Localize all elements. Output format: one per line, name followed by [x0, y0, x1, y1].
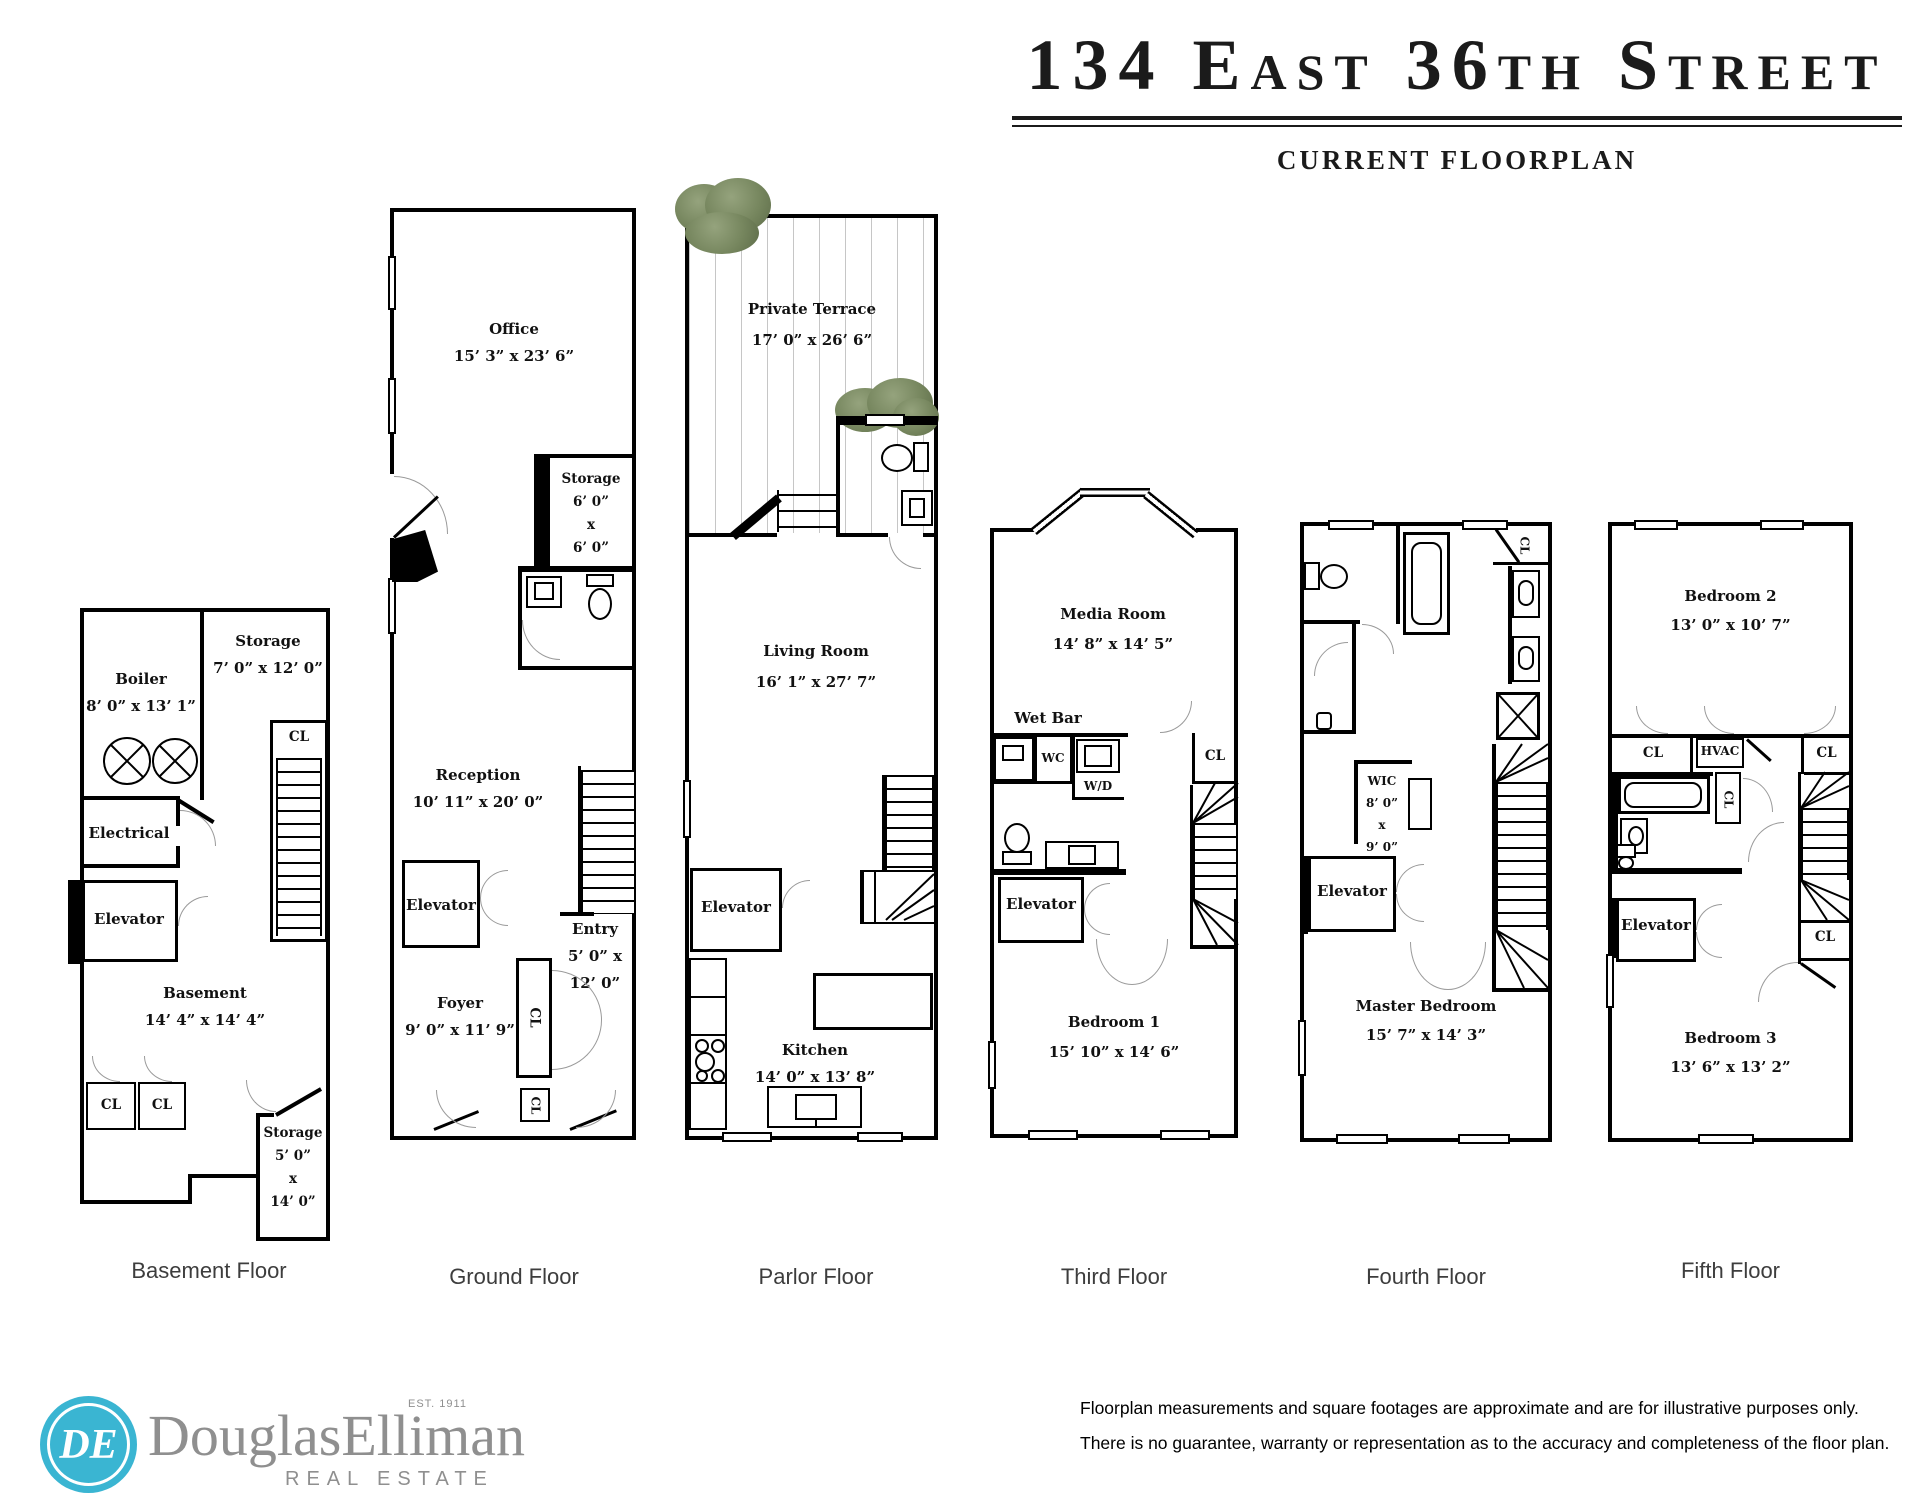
stair-winder-treads: [1496, 930, 1548, 988]
floorplan-parlor: Private Terrace 17’ 0” x 26’ 6” Living R…: [685, 192, 947, 1147]
wall: [518, 666, 636, 670]
room-label-basement: Basement 14’ 4” x 14’ 4”: [130, 980, 280, 1034]
door-arc: [1696, 904, 1722, 930]
disclaimer-line-1: Floorplan measurements and square footag…: [1080, 1398, 1920, 1419]
door-arc: [1704, 706, 1734, 734]
window: [1028, 1130, 1078, 1140]
door-arc: [1696, 932, 1722, 958]
wall: [1493, 562, 1548, 565]
disclaimer-line-2: There is no guarantee, warranty or repre…: [1080, 1433, 1920, 1454]
brand-name: DouglasElliman: [148, 1402, 525, 1469]
sink-basin: [1518, 580, 1534, 606]
room-name: Bedroom 1: [1010, 1007, 1218, 1037]
room-dims: 14’ 4” x 14’ 4”: [130, 1007, 280, 1034]
toilet-bowl: [588, 588, 612, 620]
room-label-electrical: Electrical: [80, 820, 178, 847]
wall: [1801, 920, 1849, 923]
wall: [1849, 522, 1853, 1142]
room-label-elevator: Elevator: [690, 894, 782, 921]
door-arc: [1314, 642, 1348, 676]
door-arc: [1636, 706, 1668, 734]
wall: [548, 454, 636, 458]
room-label-elevator: Elevator: [402, 892, 480, 919]
wall: [1396, 522, 1400, 624]
wall: [188, 1174, 192, 1204]
floor-caption-third: Third Floor: [990, 1264, 1238, 1290]
door-arc: [1804, 706, 1836, 734]
header: 134 East 36th Street CURRENT FLOORPLAN: [1012, 28, 1902, 176]
room-name: Bedroom 2: [1628, 582, 1833, 611]
toilet-tank: [1002, 851, 1032, 865]
washer-dryer-drum: [1084, 745, 1112, 767]
room-label-cl: CL: [1517, 532, 1532, 560]
room-dims: x: [1354, 814, 1410, 836]
bathtub-basin: [1411, 542, 1442, 625]
room-label-storage2: Storage 5’ 0” x 14’ 0”: [256, 1122, 330, 1214]
wall: [256, 1237, 330, 1241]
counter-divider: [689, 1082, 727, 1084]
sink-icon: [795, 1094, 837, 1120]
room-name: Living Room: [711, 636, 921, 667]
door-arc: [1396, 864, 1424, 892]
page-title: 134 East 36th Street: [1012, 28, 1902, 104]
door-arc: [246, 1080, 276, 1112]
floorplan-sheet: { "header": { "title": "134 East 36th St…: [0, 0, 1920, 1484]
stair-winder-treads: [884, 872, 934, 922]
wall: [256, 1113, 274, 1117]
room-label-living: Living Room 16’ 1” x 27’ 7”: [711, 636, 921, 698]
window: [1462, 520, 1508, 530]
room-label-reception: Reception 10’ 11” x 20’ 0”: [392, 762, 564, 816]
room-label-cl: CL: [528, 1091, 543, 1121]
room-name: Bedroom 3: [1628, 1024, 1833, 1053]
door-arc: [1396, 894, 1424, 922]
title-rule: [1012, 116, 1902, 127]
toilet-tank: [1304, 562, 1320, 590]
wall: [188, 1174, 260, 1178]
door-arc: [1132, 939, 1168, 985]
wall: [80, 1200, 192, 1204]
floorplan-fourth: CL WIC 8’ 0” x 9’ 0” Elevator Master Bed…: [1300, 522, 1552, 1142]
closet: [1408, 778, 1432, 830]
room-label-elevator: Elevator: [1616, 912, 1696, 939]
room-dims: 14’ 8” x 14’ 5”: [1008, 629, 1218, 659]
room-dims: 6’ 0”: [548, 537, 634, 560]
wall: [1072, 797, 1124, 800]
door-arc: [1743, 778, 1773, 812]
stairs: [1801, 808, 1849, 880]
wall: [1300, 856, 1308, 934]
wall: [518, 566, 522, 670]
room-label-media: Media Room 14’ 8” x 14’ 5”: [1008, 599, 1218, 659]
window: [865, 414, 905, 426]
room-name: Private Terrace: [707, 294, 917, 325]
stair-winder-treads: [1193, 899, 1238, 945]
bay-window: [1080, 488, 1150, 497]
door-arc: [1096, 939, 1132, 985]
wall: [685, 533, 777, 537]
stairs: [1496, 782, 1548, 930]
stairs: [862, 872, 884, 922]
door-arc: [1410, 942, 1448, 990]
door-arc: [1448, 942, 1486, 990]
bush-icon: [685, 212, 759, 254]
sink-basin: [1518, 646, 1534, 670]
stair-winder-treads: [1193, 783, 1238, 823]
floor-caption-parlor: Parlor Floor: [685, 1264, 947, 1290]
window: [1328, 520, 1374, 530]
room-dims: x: [548, 514, 634, 537]
room-label-cl: CL: [1616, 742, 1690, 765]
window: [988, 1041, 996, 1089]
room-name: Media Room: [1008, 599, 1218, 629]
door-arc: [889, 537, 921, 569]
bathtub-basin: [1624, 782, 1702, 808]
window: [683, 780, 691, 838]
window: [388, 578, 396, 634]
door-arc: [782, 880, 810, 908]
door-arc: [1362, 624, 1394, 654]
wall: [1352, 624, 1356, 734]
floor-caption-fourth: Fourth Floor: [1300, 1264, 1552, 1290]
room-dims: 15’ 7” x 14’ 3”: [1322, 1021, 1530, 1050]
door-arc: [1084, 909, 1110, 935]
floorplan-ground: Office 15’ 3” x 23’ 6” Storage 6’ 0” x 6…: [390, 208, 638, 1140]
window: [1760, 520, 1804, 530]
wall: [80, 864, 178, 868]
wall: [1548, 522, 1552, 1142]
room-dims: 9’ 0”: [1354, 836, 1410, 858]
step: [777, 494, 839, 496]
room-name: Storage: [256, 1122, 330, 1145]
window: [1160, 1130, 1210, 1140]
brand-tagline: REAL ESTATE: [285, 1468, 494, 1491]
stairs: [885, 775, 934, 872]
window: [1298, 1020, 1306, 1076]
floor-caption-basement: Basement Floor: [80, 1258, 338, 1284]
wall: [990, 528, 1036, 532]
door-arc: [180, 810, 216, 846]
wall: [1300, 620, 1360, 624]
door-arc: [144, 1056, 172, 1082]
stairs: [1193, 823, 1238, 899]
brand-est: EST. 1911: [408, 1398, 467, 1410]
wall: [1354, 760, 1412, 764]
room-label-cl: CL: [1192, 745, 1238, 768]
room-dims: 13’ 6” x 13’ 2”: [1628, 1053, 1833, 1082]
room-dims: 13’ 0” x 10’ 7”: [1628, 611, 1833, 640]
floorplan-basement: Boiler 8’ 0” x 13’ 1” Storage 7’ 0” x 12…: [80, 608, 338, 1248]
room-name: Master Bedroom: [1322, 992, 1530, 1021]
room-label-storage: Storage 6’ 0” x 6’ 0”: [548, 468, 634, 560]
room-label-bedroom2: Bedroom 2 13’ 0” x 10’ 7”: [1628, 582, 1833, 640]
boiler-tank-icon: [102, 736, 202, 786]
toilet-icon: [1316, 712, 1332, 730]
window: [1698, 1134, 1754, 1144]
room-label-office: Office 15’ 3” x 23’ 6”: [414, 316, 614, 370]
door-arc: [1758, 962, 1798, 1002]
window: [1606, 954, 1614, 1008]
room-name: WIC: [1354, 770, 1410, 792]
room-label-cl: CL: [138, 1094, 186, 1117]
sink-basin: [1068, 845, 1096, 865]
sink-basin: [1002, 745, 1024, 761]
stair-winder-treads: [1801, 772, 1849, 808]
room-dims: 16’ 1” x 27’ 7”: [711, 667, 921, 698]
room-dims: 8’ 0”: [1354, 792, 1410, 814]
room-label-cl: CL: [86, 1094, 136, 1117]
room-name: Storage: [548, 468, 634, 491]
sink-basin: [1628, 826, 1644, 846]
wall: [1190, 945, 1238, 949]
toilet-icon: [586, 574, 614, 587]
stairs: [276, 758, 322, 936]
room-label-wc: WC: [1036, 751, 1070, 766]
door-leaf: [1746, 738, 1772, 762]
room-name: Reception: [392, 762, 564, 789]
wall: [990, 869, 1126, 875]
room-dims: 9’ 0” x 11’ 9”: [398, 1017, 522, 1044]
page-subtitle: CURRENT FLOORPLAN: [1012, 145, 1902, 176]
room-label-boiler: Boiler 8’ 0” x 13’ 1”: [80, 666, 202, 720]
floor-caption-ground: Ground Floor: [390, 1264, 638, 1290]
room-name: Office: [414, 316, 614, 343]
room-label-master: Master Bedroom 15’ 7” x 14’ 3”: [1322, 992, 1530, 1050]
wall: [934, 214, 938, 1140]
counter-divider: [689, 1034, 727, 1036]
door-arc: [1084, 883, 1110, 909]
room-dims: 14’ 0” x 13’ 8”: [737, 1064, 893, 1091]
wall: [80, 608, 330, 612]
stairs: [581, 770, 636, 914]
room-label-kitchen: Kitchen 14’ 0” x 13’ 8”: [737, 1037, 893, 1091]
window: [857, 1132, 903, 1142]
room-name: Boiler: [80, 666, 202, 693]
room-label-wd: W/D: [1074, 779, 1122, 794]
wall: [520, 566, 636, 572]
wall: [923, 533, 938, 537]
toilet-tank: [913, 442, 929, 472]
door-arc: [178, 896, 208, 926]
room-label-bedroom3: Bedroom 3 13’ 6” x 13’ 2”: [1628, 1024, 1833, 1082]
room-label-cl: CL: [1804, 742, 1849, 765]
floorplan-third: Media Room 14’ 8” x 14’ 5” Wet Bar WC W/…: [990, 487, 1238, 1142]
window: [1634, 520, 1678, 530]
bay-window: [1143, 491, 1198, 538]
room-label-wic: WIC 8’ 0” x 9’ 0”: [1354, 770, 1410, 858]
room-label-elevator: Elevator: [82, 906, 176, 933]
room-name: Entry: [554, 916, 636, 943]
room-dims: 15’ 10” x 14’ 6”: [1010, 1037, 1218, 1067]
room-dims: 14’ 0”: [256, 1191, 330, 1214]
window: [1336, 1134, 1388, 1144]
step: [777, 526, 839, 528]
wall: [1608, 898, 1616, 958]
door-arc: [92, 1056, 120, 1082]
wall: [1196, 528, 1238, 532]
room-label-elevator: Elevator: [998, 891, 1084, 918]
window: [388, 378, 396, 434]
wall: [1690, 738, 1693, 774]
room-dims: 5’ 0” x: [554, 943, 636, 970]
floorplan-fifth: Bedroom 2 13’ 0” x 10’ 7” CL HVAC CL CL …: [1608, 522, 1853, 1142]
door-leaf: [1800, 962, 1836, 989]
stair-winder-treads: [1496, 744, 1548, 782]
door-leaf: [275, 1087, 322, 1116]
room-label-hvac: HVAC: [1696, 744, 1744, 759]
room-dims: 6’ 0”: [548, 491, 634, 514]
counter-divider: [689, 996, 727, 998]
bay-window: [1031, 488, 1086, 535]
brand-logo: DE: [40, 1396, 137, 1493]
window: [1458, 1134, 1510, 1144]
toilet-icon: [881, 444, 913, 472]
wall: [1801, 958, 1849, 961]
wall: [836, 533, 888, 537]
faucet: [815, 1120, 817, 1128]
terrace-decking: [689, 218, 934, 533]
shower-x: [1496, 692, 1540, 740]
floor-caption-fifth: Fifth Floor: [1608, 1258, 1853, 1284]
disclaimer: Floorplan measurements and square footag…: [1080, 1398, 1920, 1468]
toilet-icon: [1320, 564, 1348, 589]
toilet-icon: [1004, 823, 1030, 853]
door-arc: [1160, 701, 1192, 733]
window: [722, 1132, 772, 1142]
room-label-storage: Storage 7’ 0” x 12’ 0”: [206, 628, 330, 682]
room-dims: 5’ 0”: [256, 1145, 330, 1168]
sink-basin: [909, 498, 925, 518]
room-dims: 8’ 0” x 13’ 1”: [80, 693, 202, 720]
room-label-cl: CL: [1721, 787, 1736, 813]
door-arc: [1748, 822, 1784, 862]
room-dims: 10’ 11” x 20’ 0”: [392, 789, 564, 816]
room-name: Kitchen: [737, 1037, 893, 1064]
stove-icon: [693, 1038, 727, 1082]
room-dims: 15’ 3” x 23’ 6”: [414, 343, 614, 370]
sink-basin: [534, 582, 554, 600]
room-dims: 17’ 0” x 26’ 6”: [707, 325, 917, 356]
wall: [68, 880, 82, 964]
logo-monogram-icon: DE: [40, 1396, 137, 1493]
room-label-wetbar: Wet Bar: [992, 705, 1104, 732]
wall: [176, 846, 180, 868]
kitchen-island: [813, 973, 933, 1030]
wall: [80, 796, 180, 800]
step: [777, 510, 839, 512]
wall: [1608, 868, 1742, 874]
wall: [994, 781, 1074, 784]
room-name: Storage: [206, 628, 330, 655]
room-label-cl: CL: [270, 726, 328, 749]
room-label-foyer: Foyer 9’ 0” x 11’ 9”: [398, 990, 522, 1044]
stair-winder-treads: [1801, 880, 1849, 920]
room-label-cl: CL: [1801, 926, 1849, 949]
room-name: Foyer: [398, 990, 522, 1017]
room-label-cl: CL: [523, 1001, 546, 1035]
room-label-terrace: Private Terrace 17’ 0” x 26’ 6”: [707, 294, 917, 356]
window: [388, 256, 396, 310]
room-label-bedroom1: Bedroom 1 15’ 10” x 14’ 6”: [1010, 1007, 1218, 1067]
room-dims: x: [256, 1168, 330, 1191]
room-dims: 7’ 0” x 12’ 0”: [206, 655, 330, 682]
room-label-elevator: Elevator: [1308, 878, 1396, 905]
wall: [1300, 730, 1356, 734]
room-name: Basement: [130, 980, 280, 1007]
